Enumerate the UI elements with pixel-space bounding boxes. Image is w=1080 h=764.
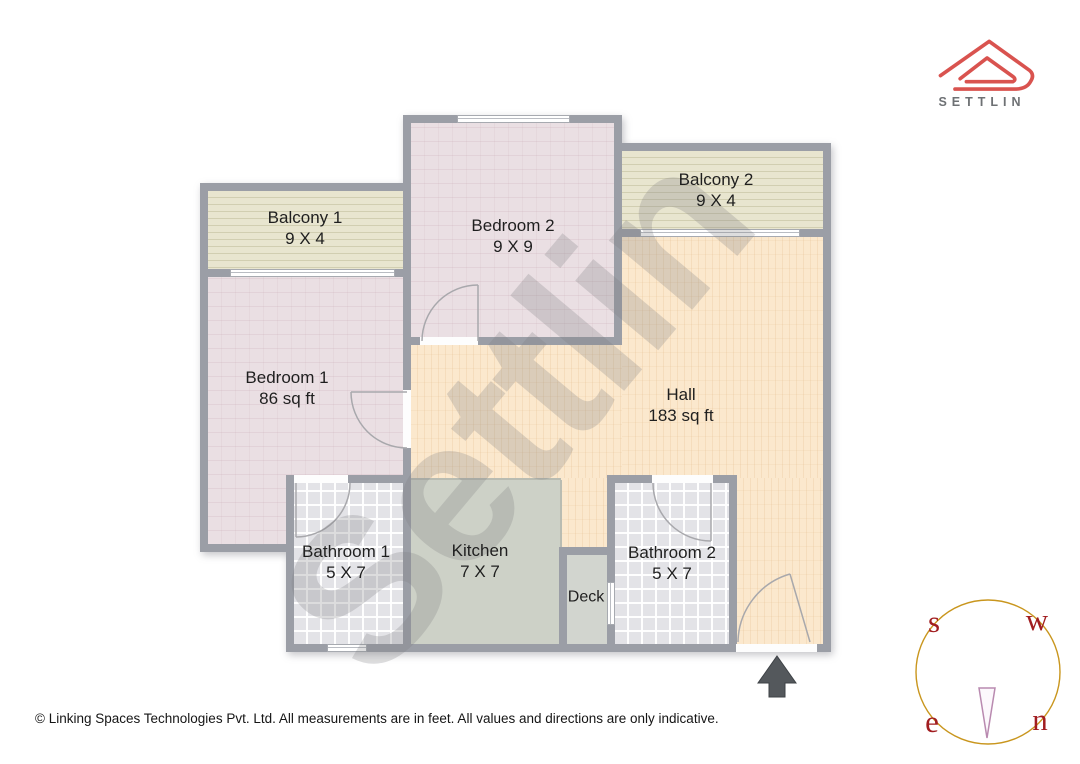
- door-opening: [652, 475, 713, 483]
- room-name: Balcony 2: [679, 169, 754, 190]
- kitchen-open-boundary: [560, 480, 562, 547]
- door-opening: [294, 475, 348, 483]
- compass-letter-north: n: [1032, 702, 1048, 738]
- room-label-balcony-2: Balcony 2 9 X 4: [679, 169, 754, 211]
- room-dims: 7 X 7: [452, 561, 509, 582]
- kitchen-open-boundary: [411, 478, 561, 480]
- compass-letter-south: s: [928, 604, 940, 640]
- room-name: Bedroom 1: [245, 367, 328, 388]
- door-opening: [403, 390, 411, 448]
- window: [640, 229, 800, 237]
- room-dims: 86 sq ft: [245, 388, 328, 409]
- logo-brand-text: SETTLIN: [925, 95, 1039, 109]
- wall: [559, 547, 567, 652]
- compass-letter-east: e: [925, 704, 939, 740]
- logo-roof-inner: [960, 58, 1015, 82]
- compass-letter-west: w: [1026, 602, 1048, 638]
- wall: [403, 115, 411, 652]
- room-label-bathroom-1: Bathroom 1 5 X 7: [302, 541, 390, 583]
- room-hall: [737, 478, 823, 644]
- wall: [614, 143, 831, 151]
- window: [607, 582, 615, 625]
- room-label-deck: Deck: [568, 587, 604, 608]
- room-name: Deck: [568, 587, 604, 608]
- room-hall: [562, 478, 607, 547]
- room-dims: 5 X 7: [302, 562, 390, 583]
- door-opening-entrance: [736, 644, 817, 652]
- room-hall: [622, 237, 823, 478]
- room-name: Bathroom 2: [628, 542, 716, 563]
- wall: [200, 544, 294, 552]
- room-dims: 9 X 4: [268, 228, 343, 249]
- room-name: Kitchen: [452, 540, 509, 561]
- copyright-text: © Linking Spaces Technologies Pvt. Ltd. …: [35, 711, 719, 726]
- wall: [607, 475, 615, 652]
- room-name: Balcony 1: [268, 207, 343, 228]
- compass-needle: [979, 688, 995, 738]
- settlin-logo-icon: [928, 30, 1040, 96]
- room-label-balcony-1: Balcony 1 9 X 4: [268, 207, 343, 249]
- room-dims: 183 sq ft: [648, 405, 713, 426]
- window: [457, 115, 570, 123]
- door-opening: [420, 337, 478, 345]
- room-label-bedroom-2: Bedroom 2 9 X 9: [471, 215, 554, 257]
- room-label-bathroom-2: Bathroom 2 5 X 7: [628, 542, 716, 584]
- wall: [200, 183, 409, 191]
- room-label-kitchen: Kitchen 7 X 7: [452, 540, 509, 582]
- room-dims: 5 X 7: [628, 563, 716, 584]
- room-dims: 9 X 4: [679, 190, 754, 211]
- window: [230, 269, 395, 277]
- room-name: Bathroom 1: [302, 541, 390, 562]
- window: [327, 644, 367, 652]
- room-hall: [411, 345, 622, 480]
- room-name: Bedroom 2: [471, 215, 554, 236]
- wall: [200, 183, 208, 552]
- room-dims: 9 X 9: [471, 236, 554, 257]
- wall: [286, 475, 294, 652]
- room-label-bedroom-1: Bedroom 1 86 sq ft: [245, 367, 328, 409]
- wall: [823, 143, 831, 652]
- room-name: Hall: [648, 384, 713, 405]
- wall: [729, 475, 737, 652]
- room-label-hall: Hall 183 sq ft: [648, 384, 713, 426]
